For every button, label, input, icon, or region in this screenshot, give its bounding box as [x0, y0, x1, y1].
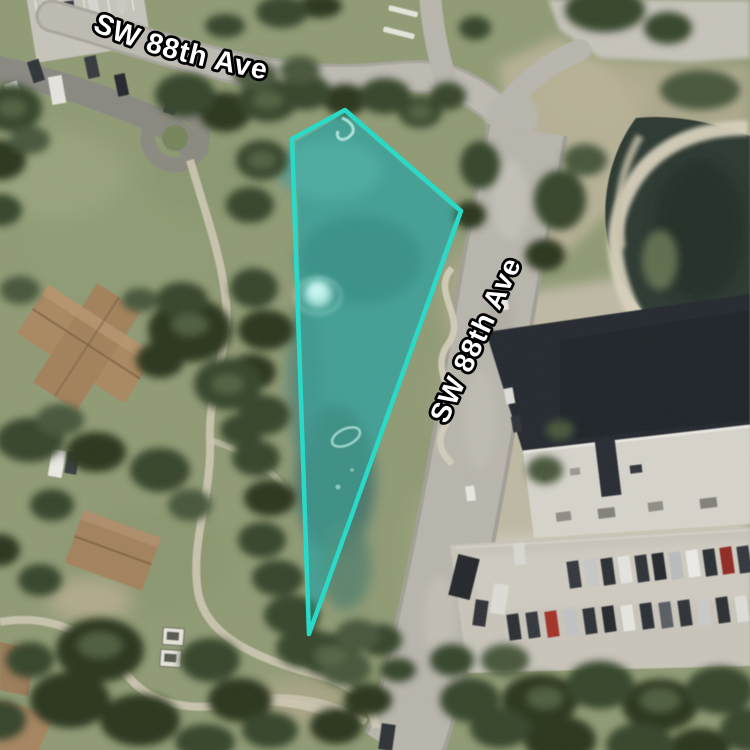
aerial-map[interactable]: SW 88th Ave SW 88th Ave — [0, 0, 750, 750]
satellite-imagery: SW 88th Ave SW 88th Ave — [0, 0, 750, 750]
